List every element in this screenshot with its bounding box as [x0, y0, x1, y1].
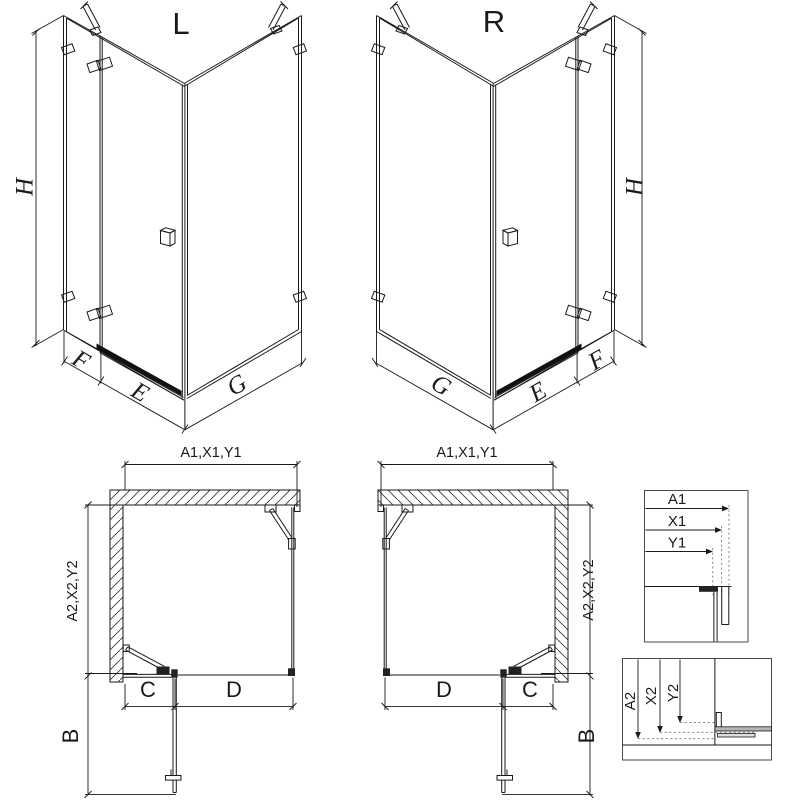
plan-view-right: A1,X1,Y1 A2,X2,Y2 D C B — [378, 445, 599, 798]
variant-label-left: L — [172, 6, 189, 41]
detail-x1-label: X1 — [668, 513, 686, 530]
detail-a1-label: A1 — [668, 491, 686, 508]
plan-left-fixed-dim: C — [140, 677, 156, 702]
variant-label-right: R — [483, 4, 505, 39]
plan-right-door-dim: D — [436, 677, 452, 702]
plan-right-open-dim: B — [574, 729, 599, 744]
dim-label-fixed-right: F — [583, 345, 611, 377]
plan-left-width-dim: A1,X1,Y1 — [180, 445, 241, 461]
dim-label-side-right: G — [426, 369, 455, 401]
drawing-svg: L H F E G R H G E F A1,X1,Y1 A2,X2,Y2 C … — [0, 0, 800, 800]
detail-x2-label: X2 — [643, 687, 660, 705]
dim-label-side-left: G — [223, 369, 252, 401]
iso-view-right: R H G E F — [372, 2, 649, 434]
dim-label-door-left: E — [126, 376, 154, 408]
iso-view-left: L H F E G — [12, 2, 307, 434]
detail-box-depth-dims: A2 X2 Y2 — [622, 659, 772, 761]
detail-y2-label: Y2 — [665, 684, 682, 702]
detail-y1-label: Y1 — [668, 534, 686, 551]
plan-left-open-dim: B — [58, 729, 83, 744]
dim-label-height-right: H — [622, 176, 649, 197]
plan-left-depth-dim: A2,X2,Y2 — [65, 560, 81, 621]
dim-label-height-left: H — [12, 176, 39, 197]
dim-label-fixed-left: F — [67, 344, 95, 376]
plan-right-depth-dim: A2,X2,Y2 — [581, 559, 597, 620]
plan-left-door-dim: D — [226, 677, 242, 702]
shower-enclosure-technical-drawing: L H F E G R H G E F A1,X1,Y1 A2,X2,Y2 C … — [0, 0, 800, 800]
plan-view-left: A1,X1,Y1 A2,X2,Y2 C D B — [58, 445, 301, 798]
detail-box-width-dims: A1 X1 Y1 — [645, 491, 749, 643]
dim-label-door-right: E — [524, 377, 552, 409]
plan-right-width-dim: A1,X1,Y1 — [436, 445, 497, 461]
plan-right-fixed-dim: C — [522, 677, 538, 702]
detail-a2-label: A2 — [622, 692, 639, 710]
